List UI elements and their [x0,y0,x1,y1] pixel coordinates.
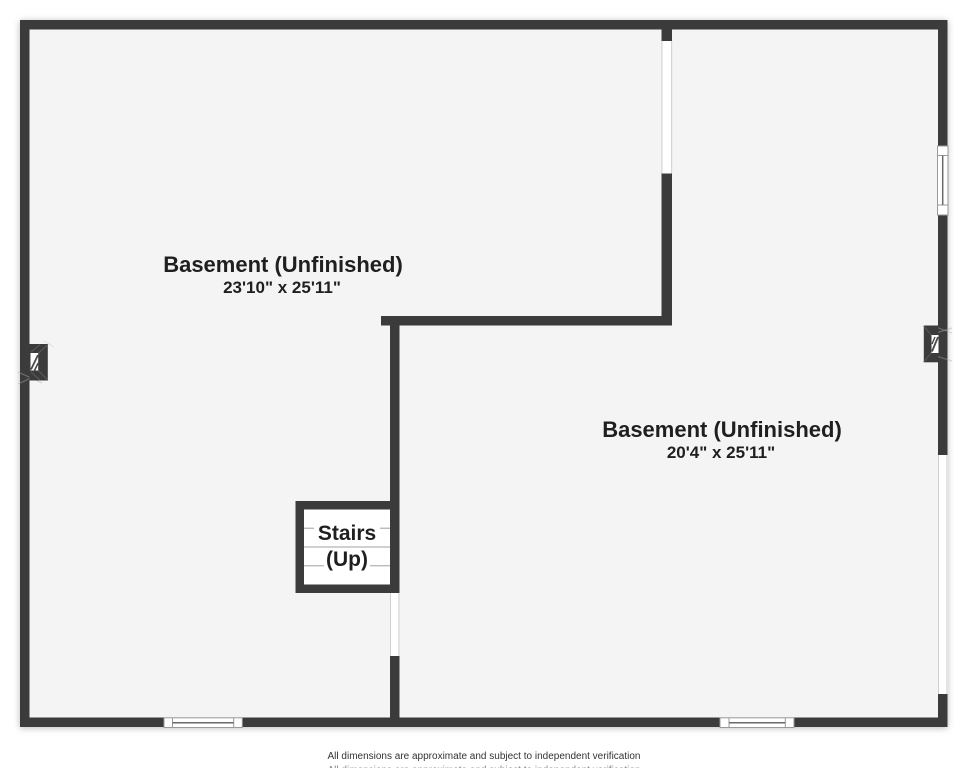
svg-text:(Up): (Up) [326,548,368,571]
svg-text:20'4" x 25'11": 20'4" x 25'11" [667,443,775,462]
svg-text:Stairs: Stairs [318,522,376,545]
svg-text:Basement (Unfinished): Basement (Unfinished) [602,417,842,442]
svg-text:23'10" x 25'11": 23'10" x 25'11" [223,278,341,297]
svg-text:All dimensions are approximate: All dimensions are approximate and subje… [328,751,641,762]
svg-text:Basement (Unfinished): Basement (Unfinished) [163,252,403,277]
